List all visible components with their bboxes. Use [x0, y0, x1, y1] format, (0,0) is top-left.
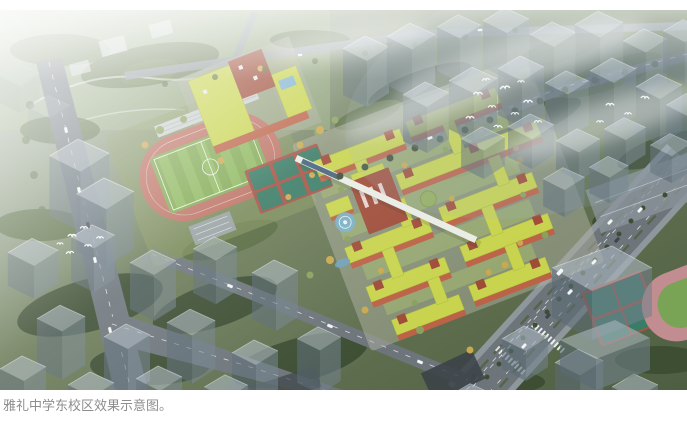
rendering-image	[0, 10, 687, 390]
image-caption: 雅礼中学东校区效果示意图。	[3, 398, 687, 413]
aerial-rendering-canvas	[0, 10, 687, 390]
article-figure: 雅礼中学东校区效果示意图。	[0, 10, 687, 413]
atmosphere-haze	[0, 10, 687, 390]
